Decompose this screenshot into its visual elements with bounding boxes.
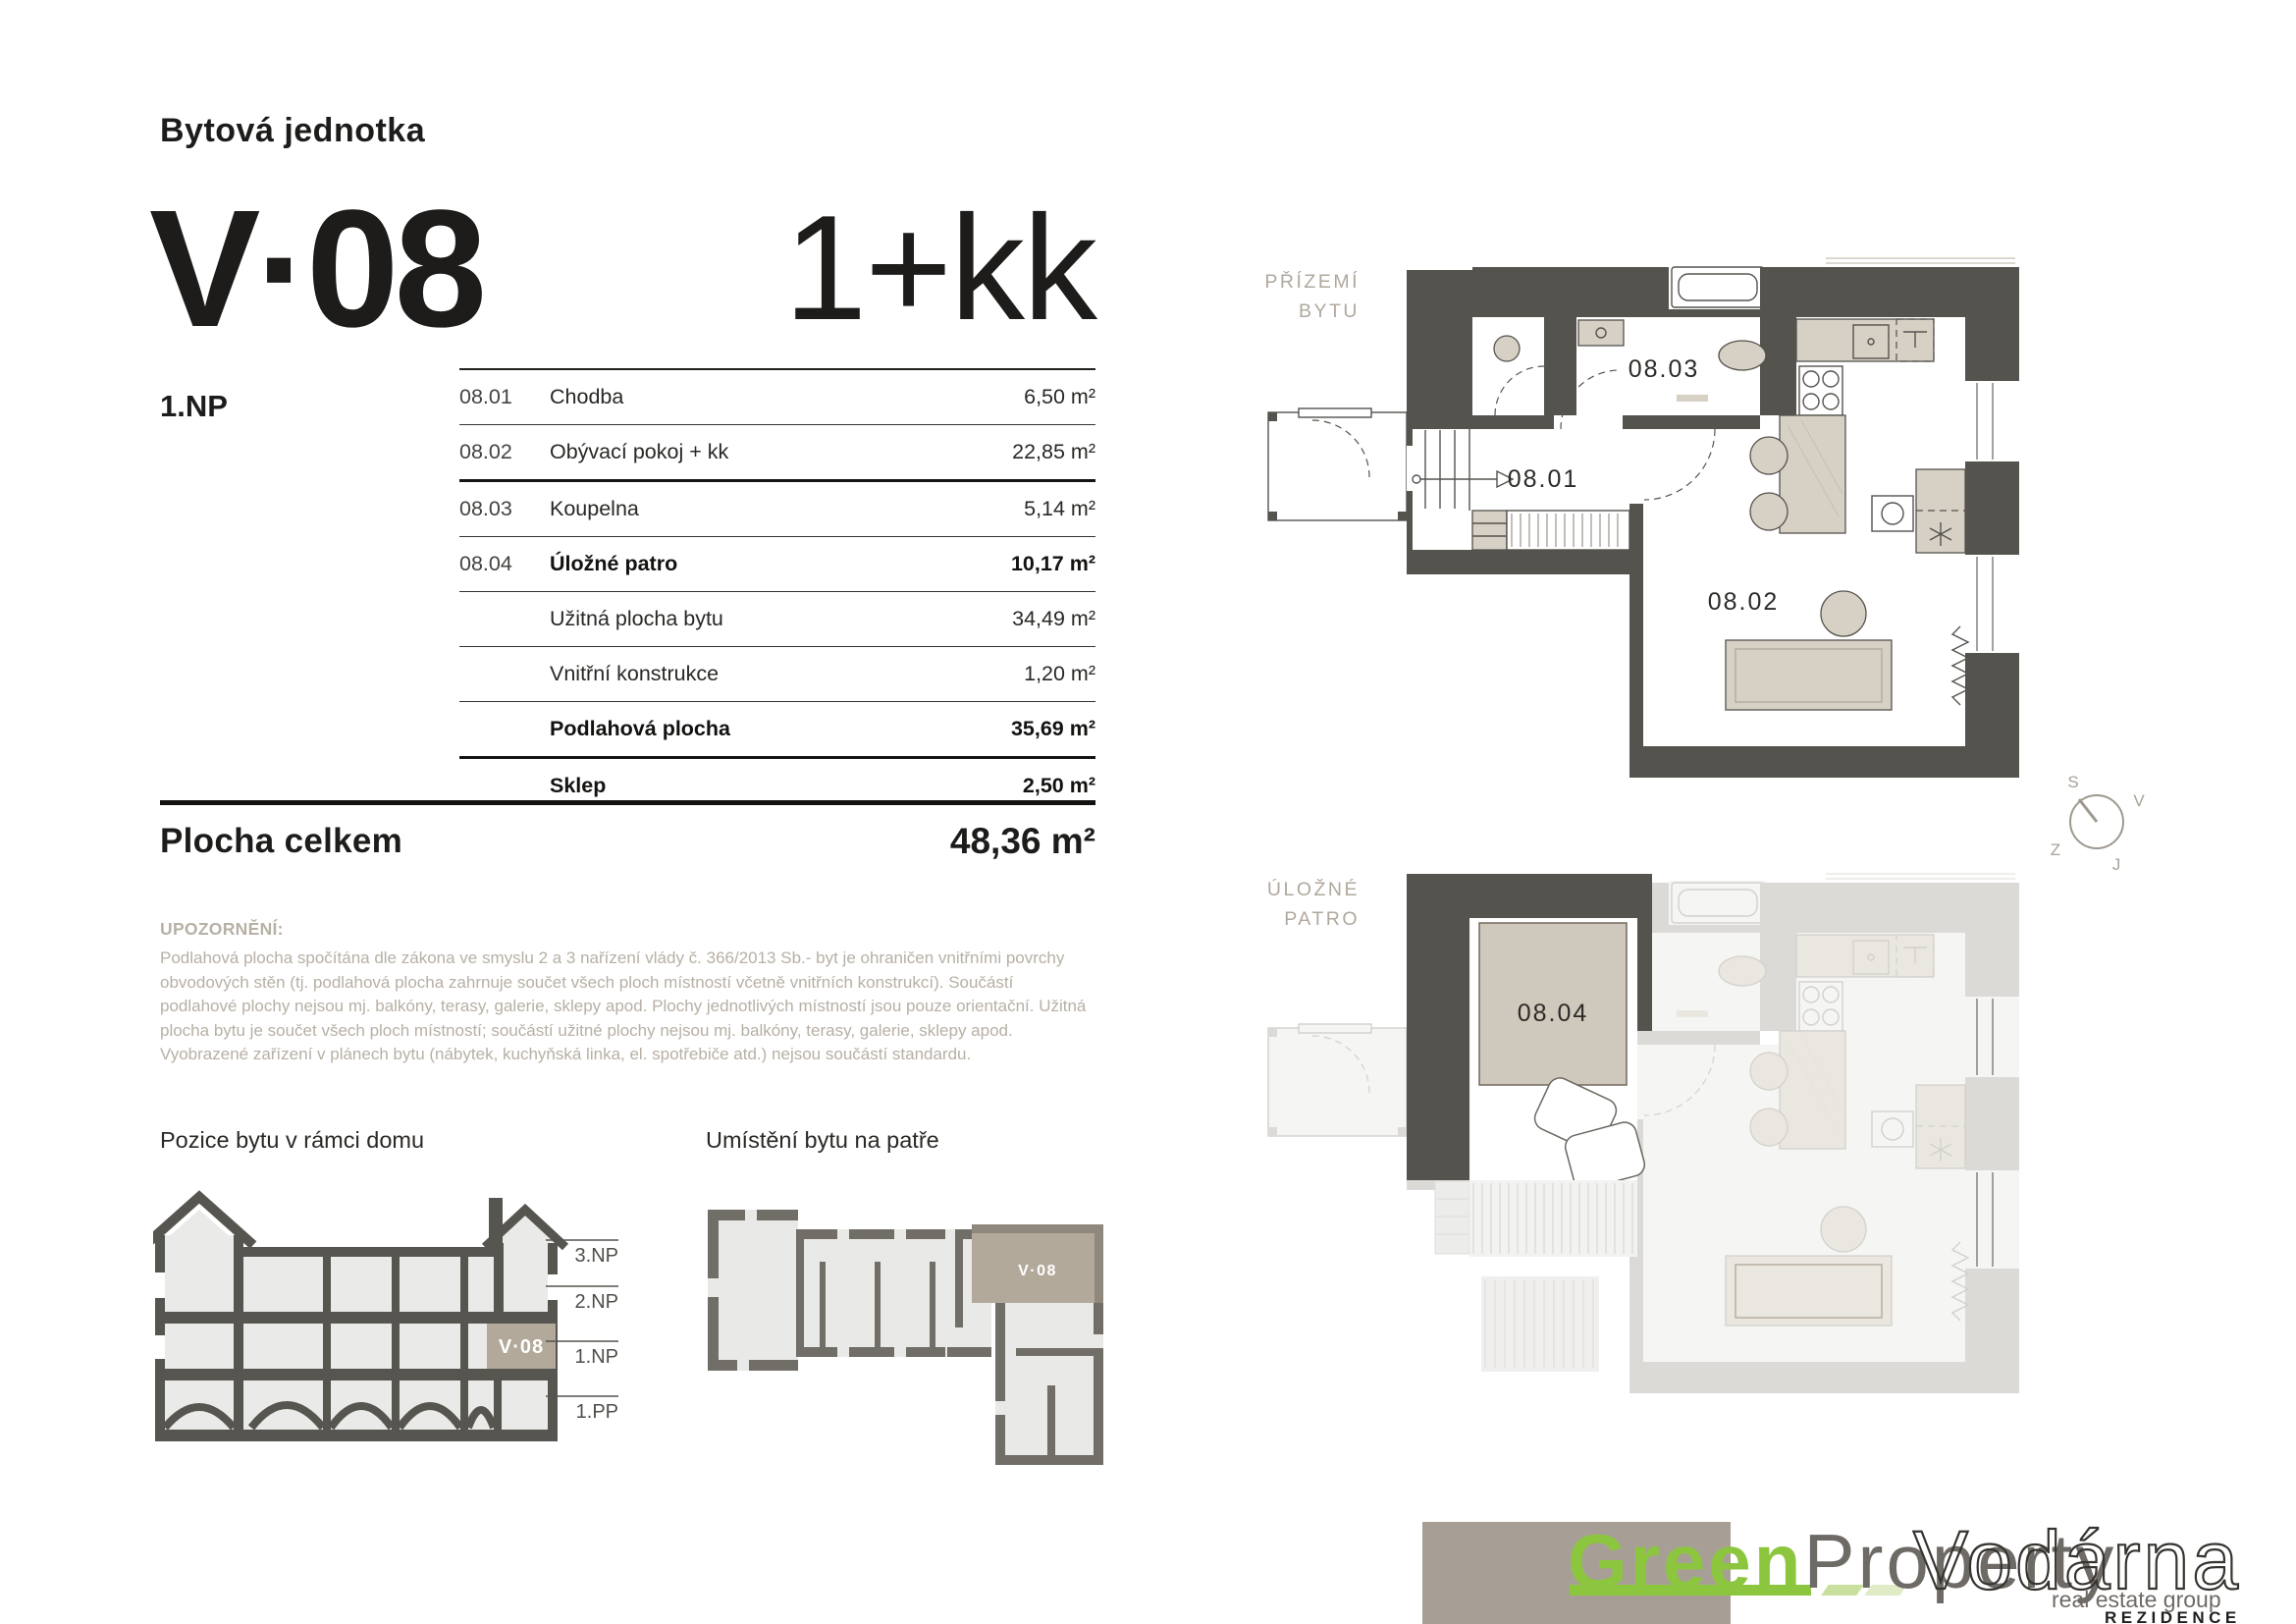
level-label-3np: 3.NP [575, 1245, 618, 1267]
disclaimer: UPOZORNĚNÍ: Podlahová plocha spočítána d… [160, 919, 1095, 1067]
total-separator-rule [160, 800, 1095, 805]
room-label-0801: 08.01 [1508, 465, 1579, 493]
room-name: Koupelna [550, 497, 1024, 521]
terrace-hatch [1435, 1180, 1637, 1372]
building-position-title: Pozice bytu v rámci domu [160, 1127, 424, 1154]
disclaimer-body: Podlahová plocha spočítána dle zákona ve… [160, 947, 1095, 1067]
table-row: 08.04 Úložné patro 10,17 m² [459, 537, 1095, 592]
ground-floor-plan: 08.03 08.01 08.02 [1261, 253, 2037, 784]
total-row: Plocha celkem 48,36 m² [160, 811, 1095, 872]
compass-north: S [2067, 773, 2078, 791]
compass-icon: S V Z J [2044, 769, 2157, 875]
compass-west: Z [2051, 840, 2060, 859]
table-row: Užitná plocha bytu 34,49 m² [459, 592, 1095, 647]
building-section-diagram: V·08 3.NP 2.NP 1.NP 1.PP [153, 1186, 644, 1471]
room-code: 08.03 [459, 497, 550, 521]
room-name: Vnitřní konstrukce [550, 662, 1024, 686]
level-label-1pp: 1.PP [576, 1401, 618, 1423]
floor-plan-sheet: Bytová jednotka V·08 1+kk 1.NP 08.01 Cho… [0, 0, 2296, 1624]
unit-label-plate: V·08 [1018, 1263, 1057, 1279]
room-code: 08.01 [459, 385, 550, 409]
level-label-1np: 1.NP [575, 1346, 618, 1368]
room-name: Užitná plocha bytu [550, 607, 1012, 631]
room-area: 10,17 m² [1011, 552, 1095, 576]
room-code: 08.04 [459, 552, 550, 576]
compass-east: V [2133, 791, 2145, 810]
storage-floor-plan: 08.04 [1261, 869, 2039, 1399]
room-area: 2,50 m² [1023, 774, 1095, 798]
room-name: Sklep [550, 774, 1023, 798]
storage-room: 08.04 [1407, 874, 1652, 1192]
room-label-0804: 08.04 [1518, 1000, 1589, 1027]
table-row: 08.03 Koupelna 5,14 m² [459, 482, 1095, 537]
rezidence-label: REZIDENCE [2105, 1608, 2241, 1624]
room-name: Úložné patro [550, 552, 1011, 576]
apartment-plan-shape [1268, 258, 2019, 778]
area-table: 08.01 Chodba 6,50 m² 08.02 Obývací pokoj… [459, 368, 1095, 813]
room-code: 08.02 [459, 440, 550, 464]
total-value: 48,36 m² [950, 821, 1095, 862]
unit-layout-type: 1+kk [784, 183, 1095, 354]
floor-plate-diagram: V·08 [702, 1203, 1124, 1478]
unit-code: V·08 [149, 173, 482, 365]
room-label-0802: 08.02 [1708, 588, 1780, 616]
room-area: 5,14 m² [1024, 497, 1095, 521]
logo-green-word: Green [1568, 1518, 1803, 1604]
room-area: 6,50 m² [1024, 385, 1095, 409]
table-row: 08.01 Chodba 6,50 m² [459, 370, 1095, 425]
room-area: 1,20 m² [1024, 662, 1095, 686]
room-area: 35,69 m² [1011, 717, 1095, 741]
room-label-0803: 08.03 [1629, 355, 1700, 383]
compass-south: J [2112, 855, 2121, 874]
table-row: Podlahová plocha 35,69 m² [459, 702, 1095, 759]
table-row: Vnitřní konstrukce 1,20 m² [459, 647, 1095, 702]
room-area: 34,49 m² [1012, 607, 1095, 631]
building-body: V·08 [153, 1197, 565, 1441]
floor-location-title: Umístění bytu na patře [706, 1127, 939, 1154]
room-area: 22,85 m² [1012, 440, 1095, 464]
total-label: Plocha celkem [160, 822, 402, 861]
room-name: Chodba [550, 385, 1024, 409]
disclaimer-title: UPOZORNĚNÍ: [160, 919, 1095, 940]
level-label-2np: 2.NP [575, 1291, 618, 1313]
unit-label-section: V·08 [499, 1336, 544, 1358]
table-row: 08.02 Obývací pokoj + kk 22,85 m² [459, 425, 1095, 482]
room-name: Podlahová plocha [550, 717, 1011, 741]
floor-label: 1.NP [160, 389, 228, 424]
document-title: Bytová jednotka [160, 112, 425, 150]
room-name: Obývací pokoj + kk [550, 440, 1012, 464]
